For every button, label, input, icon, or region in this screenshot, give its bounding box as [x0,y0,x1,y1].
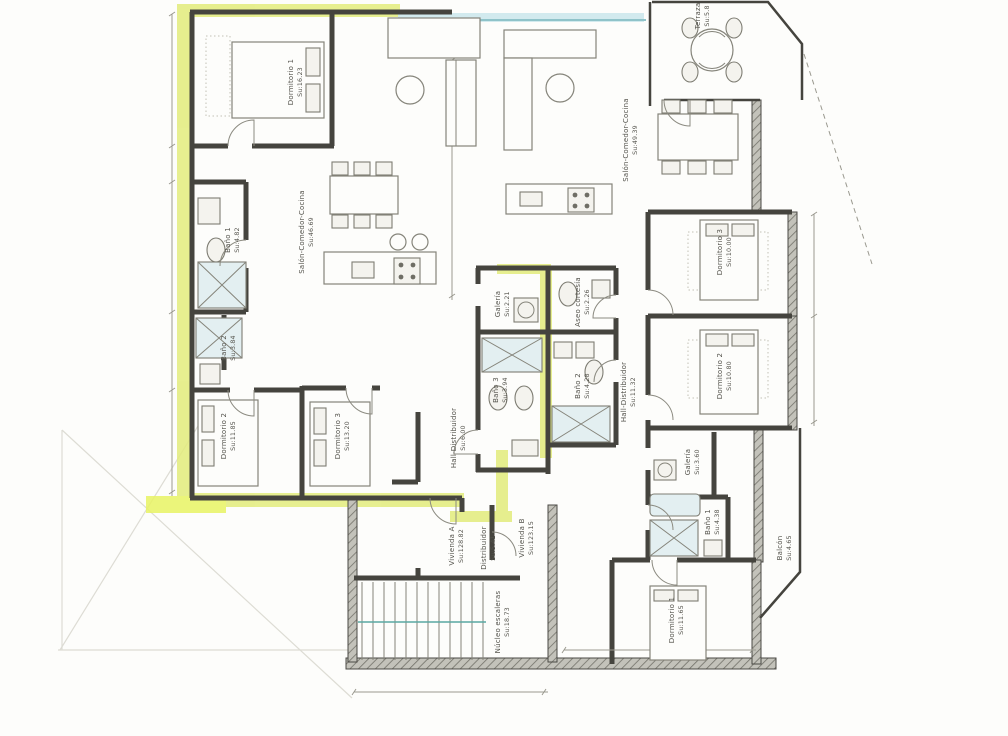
svg-text:Aseo cortesía: Aseo cortesía [574,277,582,327]
scanned-floorplan-page: Dormitorio 1Su:16.23 Salón-Comedor-Cocin… [0,0,1008,736]
svg-text:Su:18.73: Su:18.73 [504,607,511,637]
room-label-b-galeria: GaleríaSu:3.60 [684,449,701,475]
svg-text:Baño 2: Baño 2 [574,373,582,399]
svg-text:Vivienda B: Vivienda B [518,518,526,557]
svg-text:Galería: Galería [494,291,502,317]
svg-text:Su:4.65: Su:4.65 [786,535,793,561]
room-label-b-bano2: Baño 2Su:4.28 [574,373,591,399]
bathroom-3a-fixtures [482,338,542,456]
svg-text:Galería: Galería [684,449,692,475]
svg-text:Su:5.41: Su:5.41 [490,535,497,561]
svg-text:Dormitorio 2: Dormitorio 2 [716,353,724,399]
svg-text:Terraza: Terraza [694,3,702,31]
svg-text:Su:13.20: Su:13.20 [344,421,351,451]
room-label-a-hall: Hall-DistribuidorSu:6.00 [450,408,467,468]
svg-text:Núcleo escaleras: Núcleo escaleras [494,591,502,654]
svg-text:Dormitorio 1: Dormitorio 1 [287,59,295,105]
svg-text:Baño 1: Baño 1 [704,509,712,535]
bed-icon [198,400,258,486]
room-label-a-salon: Salón-Comedor-CocinaSu:46.69 [298,190,315,274]
svg-text:Su:49.39: Su:49.39 [632,125,639,155]
washer-icon [514,298,538,322]
svg-text:Su:5.8: Su:5.8 [704,5,711,26]
svg-text:Hall-Distribuidor: Hall-Distribuidor [620,362,628,422]
sofa-icon [504,30,596,150]
bed-icon [232,42,324,118]
svg-text:Baño 1: Baño 1 [224,227,232,253]
svg-text:Su:16.23: Su:16.23 [297,67,304,97]
svg-text:Su:3.60: Su:3.60 [694,449,701,475]
bidet-icon [515,386,533,410]
svg-text:Su:4.38: Su:4.38 [714,509,721,535]
room-label-b-terraza: TerrazaSu:5.8 [694,3,711,31]
svg-text:Dormitorio 1: Dormitorio 1 [668,597,676,643]
svg-text:Su:4.28: Su:4.28 [584,373,591,399]
svg-text:Su:3.94: Su:3.94 [502,377,509,403]
unit-label-vivienda-b: Vivienda BSu:123.15 [518,518,535,557]
svg-text:Baño 3: Baño 3 [492,377,500,403]
svg-text:Balcón: Balcón [776,536,784,561]
svg-text:Dormitorio 3: Dormitorio 3 [334,413,342,459]
toilet-icon [207,238,225,262]
svg-text:Su:128.82: Su:128.82 [458,529,465,563]
room-label-b-aseo: Aseo cortesíaSu:2.26 [574,277,591,327]
sink-icon [704,540,722,556]
svg-text:Su:46.69: Su:46.69 [308,217,315,247]
dining-table-icon [330,162,398,228]
bathtub-icon [650,494,700,516]
svg-text:Hall-Distribuidor: Hall-Distribuidor [450,408,458,468]
svg-text:Salón-Comedor-Cocina: Salón-Comedor-Cocina [622,98,630,182]
room-label-b-salon: Salón-Comedor-CocinaSu:49.39 [622,98,639,182]
terrace-table-icon [682,18,742,82]
sink-icon [592,280,610,298]
svg-text:Vivienda A: Vivienda A [448,526,456,565]
room-label-nucleo-escaleras: Núcleo escalerasSu:18.73 [494,591,511,654]
sofa-icon [446,60,476,146]
room-label-b-balcon: BalcónSu:4.65 [776,535,793,561]
svg-text:Su:10.80: Su:10.80 [726,361,733,391]
room-label-b-hall: Hall-DistribuidorSu:11.32 [620,362,637,422]
floorplan-drawing: Dormitorio 1Su:16.23 Salón-Comedor-Cocin… [0,0,1008,736]
svg-text:Dormitorio 3: Dormitorio 3 [716,229,724,275]
svg-text:Su:11.65: Su:11.65 [678,605,685,635]
room-label-a-galeria: GaleríaSu:2.21 [494,291,511,317]
svg-text:Su:11.85: Su:11.85 [230,421,237,451]
dining-table-icon [658,100,738,174]
svg-text:Su:6.00: Su:6.00 [460,425,467,451]
svg-text:Su:10.00: Su:10.00 [726,237,733,267]
washer-icon [654,460,676,480]
svg-text:Salón-Comedor-Cocina: Salón-Comedor-Cocina [298,190,306,274]
svg-text:Dormitorio 2: Dormitorio 2 [220,413,228,459]
svg-text:Su:11.32: Su:11.32 [630,377,637,407]
svg-text:Distribuidor: Distribuidor [480,526,488,569]
svg-text:Su:3.84: Su:3.84 [230,335,237,361]
sink-icon [512,440,538,456]
svg-text:Su:2.21: Su:2.21 [504,291,511,317]
unit-label-vivienda-a: Vivienda ASu:128.82 [448,526,465,565]
room-label-b-bano1: Baño 1Su:4.38 [704,509,721,535]
svg-text:Su:123.15: Su:123.15 [528,521,535,555]
kitchen-island-icon [324,234,436,284]
svg-text:Baño 2: Baño 2 [220,335,228,361]
svg-text:Su:2.26: Su:2.26 [584,289,591,315]
svg-text:Su:4.82: Su:4.82 [234,227,241,253]
room-label-a-bano1: Baño 1Su:4.82 [224,227,241,253]
stairs-icon [358,582,486,660]
kitchen-counter-icon [506,184,612,214]
